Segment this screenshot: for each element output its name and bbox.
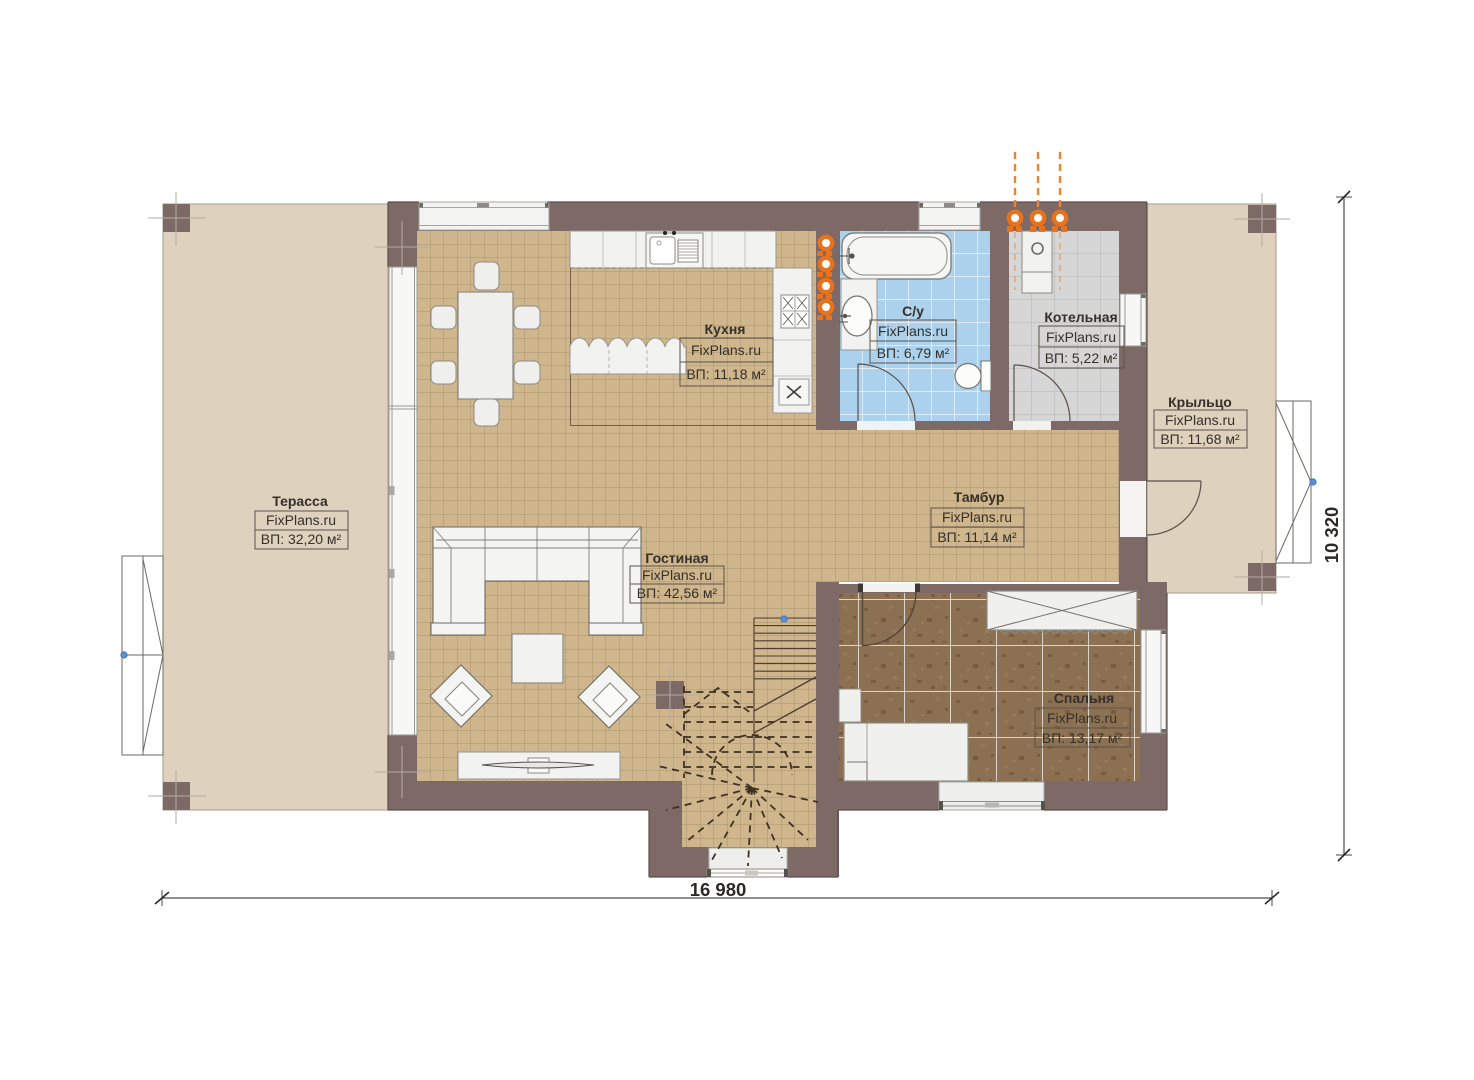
- svg-text:Терасса: Терасса: [272, 493, 328, 509]
- svg-text:С/у: С/у: [902, 303, 924, 319]
- svg-text:FixPlans.ru: FixPlans.ru: [1046, 329, 1116, 345]
- svg-text:Кухня: Кухня: [705, 321, 746, 337]
- svg-text:ВП: 13,17 м²: ВП: 13,17 м²: [1042, 730, 1123, 746]
- svg-text:Гостиная: Гостиная: [645, 550, 708, 566]
- svg-text:ВП: 11,68 м²: ВП: 11,68 м²: [1160, 431, 1240, 447]
- svg-text:FixPlans.ru: FixPlans.ru: [942, 509, 1012, 525]
- svg-text:FixPlans.ru: FixPlans.ru: [1165, 412, 1235, 428]
- svg-text:FixPlans.ru: FixPlans.ru: [878, 323, 948, 339]
- svg-text:Котельная: Котельная: [1044, 309, 1117, 325]
- svg-text:FixPlans.ru: FixPlans.ru: [1047, 710, 1117, 726]
- svg-text:FixPlans.ru: FixPlans.ru: [691, 342, 761, 358]
- svg-text:16 980: 16 980: [690, 879, 747, 900]
- svg-text:ВП: 11,18 м²: ВП: 11,18 м²: [686, 366, 766, 382]
- svg-text:FixPlans.ru: FixPlans.ru: [642, 567, 712, 583]
- svg-text:10 320: 10 320: [1321, 507, 1342, 564]
- svg-text:ВП: 5,22 м²: ВП: 5,22 м²: [1045, 350, 1118, 366]
- svg-text:ВП: 32,20 м²: ВП: 32,20 м²: [261, 531, 342, 547]
- svg-text:Тамбур: Тамбур: [954, 489, 1005, 505]
- svg-text:ВП: 6,79 м²: ВП: 6,79 м²: [877, 345, 950, 361]
- svg-text:Спальня: Спальня: [1054, 690, 1114, 706]
- svg-text:ВП: 11,14 м²: ВП: 11,14 м²: [937, 529, 1017, 545]
- svg-text:FixPlans.ru: FixPlans.ru: [266, 512, 336, 528]
- svg-text:Крыльцо: Крыльцо: [1168, 394, 1232, 410]
- svg-text:ВП: 42,56 м²: ВП: 42,56 м²: [637, 585, 718, 601]
